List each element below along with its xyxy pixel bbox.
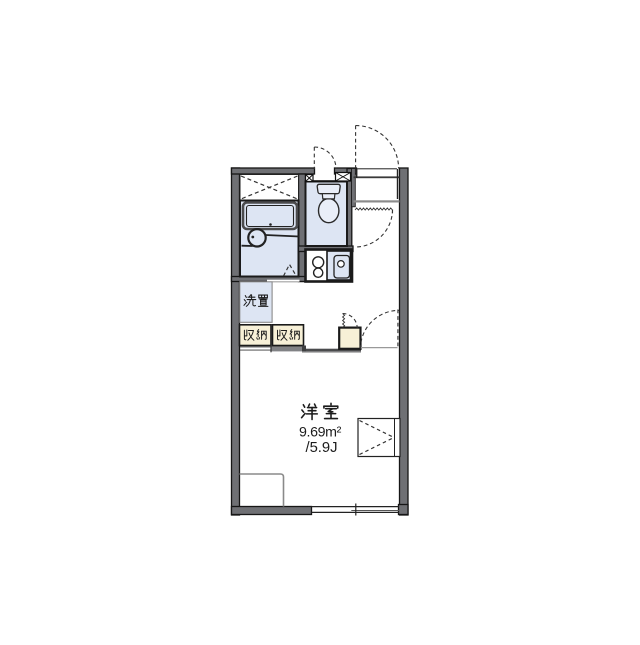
- svg-text:/5.9J: /5.9J: [305, 440, 337, 456]
- svg-text:9.69m²: 9.69m²: [299, 425, 342, 441]
